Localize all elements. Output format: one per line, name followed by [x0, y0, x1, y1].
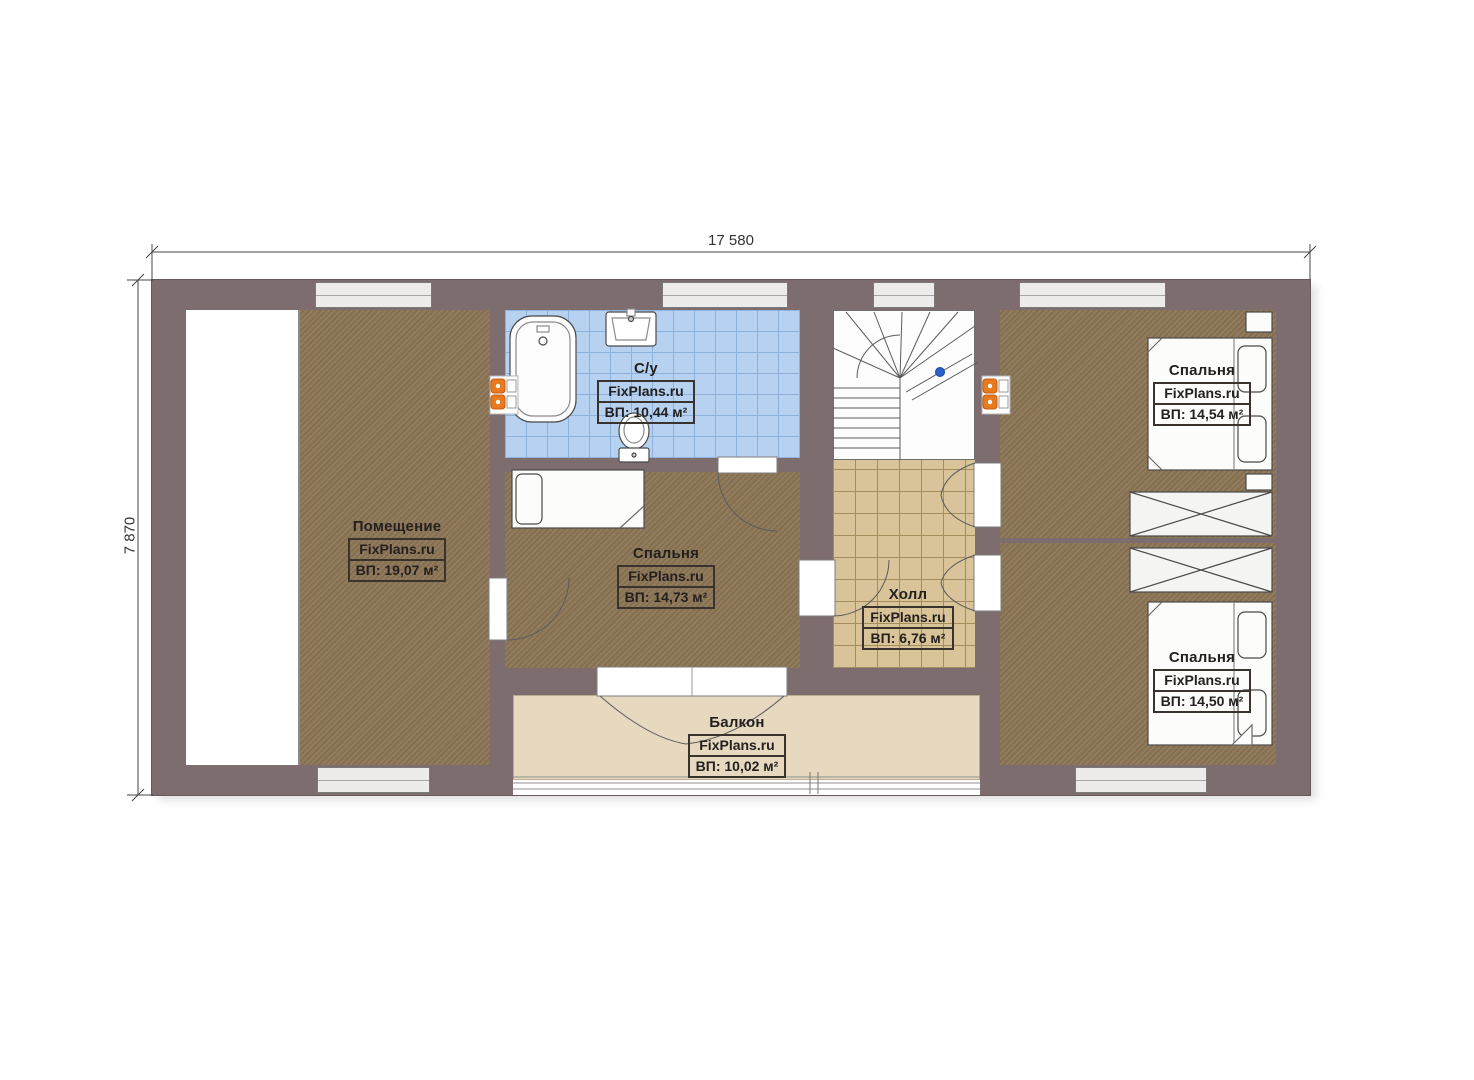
window-bottom-1 [317, 767, 430, 793]
dimension-left-label: 7 870 [122, 511, 139, 561]
room-info-box: FixPlans.ru ВП: 6,76 м² [862, 606, 953, 650]
area-label: ВП: 10,02 м² [690, 757, 785, 776]
floor-plan-canvas: 17 580 7 870 Помещение FixPlans.ru ВП: 1… [0, 0, 1474, 1080]
room-name: Спальня [633, 545, 699, 562]
room-label-bedroom-top-right: Спальня FixPlans.ru ВП: 14,54 м² [1144, 362, 1260, 426]
room-name: С/у [634, 360, 658, 377]
brand-label: FixPlans.ru [690, 736, 785, 757]
window-top-2 [662, 282, 788, 308]
brand-label: FixPlans.ru [864, 608, 951, 629]
room-name: Спальня [1169, 649, 1235, 666]
room-label-balcony: Балкон FixPlans.ru ВП: 10,02 м² [679, 714, 795, 778]
brand-label: FixPlans.ru [1155, 384, 1250, 405]
window-top-1 [315, 282, 432, 308]
room-label-hall: Холл FixPlans.ru ВП: 6,76 м² [860, 586, 956, 650]
brand-label: FixPlans.ru [1155, 671, 1250, 692]
brand-label: FixPlans.ru [599, 382, 694, 403]
window-top-3 [873, 282, 935, 308]
balcony-outside-strip [513, 780, 980, 795]
window-bottom-2 [1075, 767, 1207, 793]
dimension-top-label: 17 580 [681, 232, 781, 249]
room-name: Помещение [353, 518, 442, 535]
room-label-utility: Помещение FixPlans.ru ВП: 19,07 м² [339, 518, 455, 582]
area-label: ВП: 14,50 м² [1155, 692, 1250, 711]
room-label-bathroom: С/у FixPlans.ru ВП: 10,44 м² [588, 360, 704, 424]
brand-label: FixPlans.ru [619, 567, 714, 588]
room-info-box: FixPlans.ru ВП: 14,54 м² [1153, 382, 1252, 426]
room-label-bedroom-middle: Спальня FixPlans.ru ВП: 14,73 м² [608, 545, 724, 609]
room-label-bedroom-bottom-right: Спальня FixPlans.ru ВП: 14,50 м² [1144, 649, 1260, 713]
floor-void-room [186, 310, 300, 765]
room-info-box: FixPlans.ru ВП: 14,50 м² [1153, 669, 1252, 713]
area-label: ВП: 14,54 м² [1155, 405, 1250, 424]
area-label: ВП: 19,07 м² [350, 561, 445, 580]
area-label: ВП: 14,73 м² [619, 588, 714, 607]
room-info-box: FixPlans.ru ВП: 19,07 м² [348, 538, 447, 582]
room-name: Холл [889, 586, 927, 603]
area-label: ВП: 6,76 м² [864, 629, 951, 648]
room-info-box: FixPlans.ru ВП: 14,73 м² [617, 565, 716, 609]
room-info-box: FixPlans.ru ВП: 10,44 м² [597, 380, 696, 424]
window-top-4 [1019, 282, 1166, 308]
area-label: ВП: 10,44 м² [599, 403, 694, 422]
staircase-area [833, 310, 975, 460]
room-name: Балкон [709, 714, 764, 731]
room-info-box: FixPlans.ru ВП: 10,02 м² [688, 734, 787, 778]
brand-label: FixPlans.ru [350, 540, 445, 561]
room-name: Спальня [1169, 362, 1235, 379]
